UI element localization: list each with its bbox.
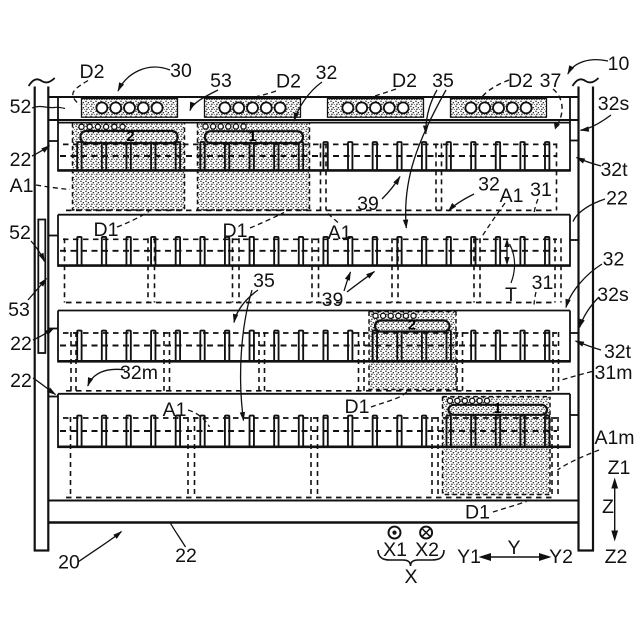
svg-text:D2: D2	[276, 71, 301, 93]
svg-text:30: 30	[170, 60, 192, 82]
svg-text:37: 37	[540, 70, 562, 92]
svg-text:A1: A1	[500, 185, 524, 207]
svg-text:22: 22	[10, 370, 32, 392]
svg-text:53: 53	[210, 70, 232, 92]
svg-text:32t: 32t	[604, 341, 632, 363]
svg-text:A1: A1	[328, 222, 352, 244]
svg-text:D2: D2	[80, 61, 105, 83]
svg-text:1: 1	[248, 129, 256, 145]
svg-text:32: 32	[603, 249, 625, 271]
svg-text:D2: D2	[508, 70, 533, 92]
svg-text:32m: 32m	[120, 362, 158, 384]
svg-text:22: 22	[10, 149, 32, 171]
svg-text:31: 31	[530, 179, 552, 201]
svg-text:1: 1	[493, 401, 501, 417]
svg-text:Z2: Z2	[605, 546, 628, 568]
svg-text:22: 22	[10, 333, 32, 355]
svg-text:22: 22	[606, 188, 628, 210]
svg-text:A1: A1	[163, 399, 187, 421]
svg-text:D1: D1	[465, 502, 490, 524]
svg-text:Y2: Y2	[549, 546, 573, 568]
svg-text:32s: 32s	[598, 93, 630, 115]
svg-text:32: 32	[478, 174, 500, 196]
svg-text:Z: Z	[602, 496, 614, 518]
svg-text:31m: 31m	[595, 362, 633, 384]
svg-text:2: 2	[126, 129, 134, 145]
svg-text:20: 20	[58, 552, 80, 574]
svg-text:X1: X1	[383, 539, 407, 561]
svg-text:35: 35	[253, 270, 275, 292]
svg-text:X2: X2	[415, 539, 439, 561]
svg-text:32s: 32s	[597, 284, 629, 306]
svg-text:31: 31	[532, 272, 554, 294]
svg-text:52: 52	[9, 222, 31, 244]
svg-text:35: 35	[432, 70, 454, 92]
svg-text:A1: A1	[10, 175, 34, 197]
svg-text:Y: Y	[507, 537, 520, 559]
svg-text:39: 39	[357, 193, 379, 215]
svg-text:32: 32	[316, 62, 338, 84]
svg-text:10: 10	[608, 53, 630, 75]
svg-text:52: 52	[10, 96, 32, 118]
svg-text:D1: D1	[345, 396, 370, 418]
svg-text:X: X	[404, 566, 417, 588]
svg-text:22: 22	[175, 545, 197, 567]
svg-text:A1m: A1m	[594, 427, 634, 449]
svg-text:D1: D1	[223, 220, 248, 242]
svg-text:2: 2	[408, 318, 416, 334]
svg-text:Z1: Z1	[608, 457, 631, 479]
svg-text:Y1: Y1	[457, 546, 481, 568]
svg-text:T: T	[505, 284, 517, 306]
svg-text:32t: 32t	[600, 159, 628, 181]
svg-text:D1: D1	[94, 219, 119, 241]
svg-text:53: 53	[8, 299, 30, 321]
svg-text:39: 39	[322, 289, 344, 311]
